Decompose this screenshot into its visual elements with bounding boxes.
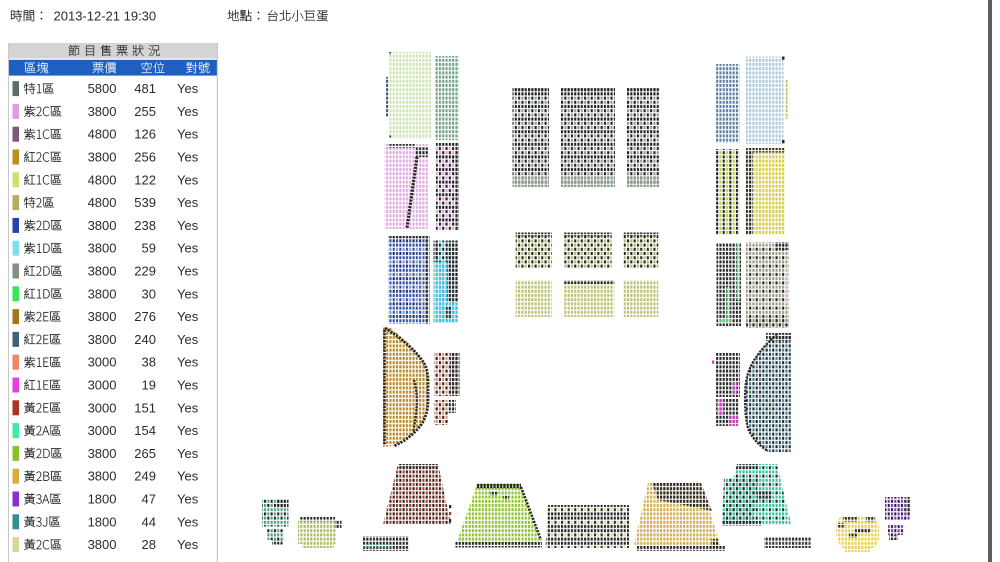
svg-text:Yes: Yes: [177, 172, 199, 187]
svg-text:249: 249: [134, 469, 156, 484]
svg-text:Yes: Yes: [177, 264, 199, 279]
svg-text:3800: 3800: [88, 286, 117, 301]
svg-text:Yes: Yes: [177, 309, 199, 324]
svg-text:122: 122: [134, 172, 156, 187]
svg-text:59: 59: [142, 241, 156, 256]
svg-text:3800: 3800: [88, 332, 117, 347]
svg-text:47: 47: [142, 492, 156, 507]
svg-text:Yes: Yes: [177, 150, 199, 165]
svg-text:154: 154: [134, 423, 156, 438]
svg-text:255: 255: [134, 104, 156, 119]
svg-text:Yes: Yes: [177, 81, 199, 96]
svg-text:38: 38: [142, 355, 156, 370]
svg-text:126: 126: [134, 127, 156, 142]
svg-text:3800: 3800: [88, 218, 117, 233]
svg-text:1800: 1800: [88, 492, 117, 507]
svg-text:Yes: Yes: [177, 195, 199, 210]
svg-text:19: 19: [142, 378, 156, 393]
svg-text:539: 539: [134, 195, 156, 210]
svg-text:4800: 4800: [88, 127, 117, 142]
svg-text:3000: 3000: [88, 400, 117, 415]
svg-text:Yes: Yes: [177, 514, 199, 529]
svg-text:3800: 3800: [88, 264, 117, 279]
svg-text:3000: 3000: [88, 423, 117, 438]
svg-text:Yes: Yes: [177, 286, 199, 301]
svg-text:Yes: Yes: [177, 446, 199, 461]
svg-text:Yes: Yes: [177, 104, 199, 119]
svg-text:240: 240: [134, 332, 156, 347]
svg-text:Yes: Yes: [177, 423, 199, 438]
svg-text:3800: 3800: [88, 241, 117, 256]
svg-text:Yes: Yes: [177, 127, 199, 142]
svg-text:151: 151: [134, 400, 156, 415]
svg-text:3800: 3800: [88, 309, 117, 324]
svg-text:3000: 3000: [88, 355, 117, 370]
svg-text:3000: 3000: [88, 378, 117, 393]
svg-text:3800: 3800: [88, 104, 117, 119]
svg-text:44: 44: [142, 514, 156, 529]
svg-text:30: 30: [142, 286, 156, 301]
svg-text:3800: 3800: [88, 469, 117, 484]
svg-text:256: 256: [134, 150, 156, 165]
svg-text:Yes: Yes: [177, 537, 199, 552]
svg-text:276: 276: [134, 309, 156, 324]
svg-text:Yes: Yes: [177, 332, 199, 347]
svg-text:481: 481: [134, 81, 156, 96]
svg-text:Yes: Yes: [177, 400, 199, 415]
svg-text:2013-12-21 19:30: 2013-12-21 19:30: [54, 8, 157, 23]
svg-text:Yes: Yes: [177, 469, 199, 484]
svg-text:238: 238: [134, 218, 156, 233]
svg-text:5800: 5800: [88, 81, 117, 96]
svg-text:28: 28: [142, 537, 156, 552]
svg-text:1800: 1800: [88, 514, 117, 529]
svg-text:Yes: Yes: [177, 492, 199, 507]
svg-text:265: 265: [134, 446, 156, 461]
svg-text:3800: 3800: [88, 150, 117, 165]
svg-text:Yes: Yes: [177, 218, 199, 233]
svg-text:3800: 3800: [88, 446, 117, 461]
svg-text:3800: 3800: [88, 537, 117, 552]
svg-text:229: 229: [134, 264, 156, 279]
svg-text:Yes: Yes: [177, 355, 199, 370]
svg-text:4800: 4800: [88, 172, 117, 187]
svg-text:Yes: Yes: [177, 241, 199, 256]
svg-text:4800: 4800: [88, 195, 117, 210]
svg-text:Yes: Yes: [177, 378, 199, 393]
